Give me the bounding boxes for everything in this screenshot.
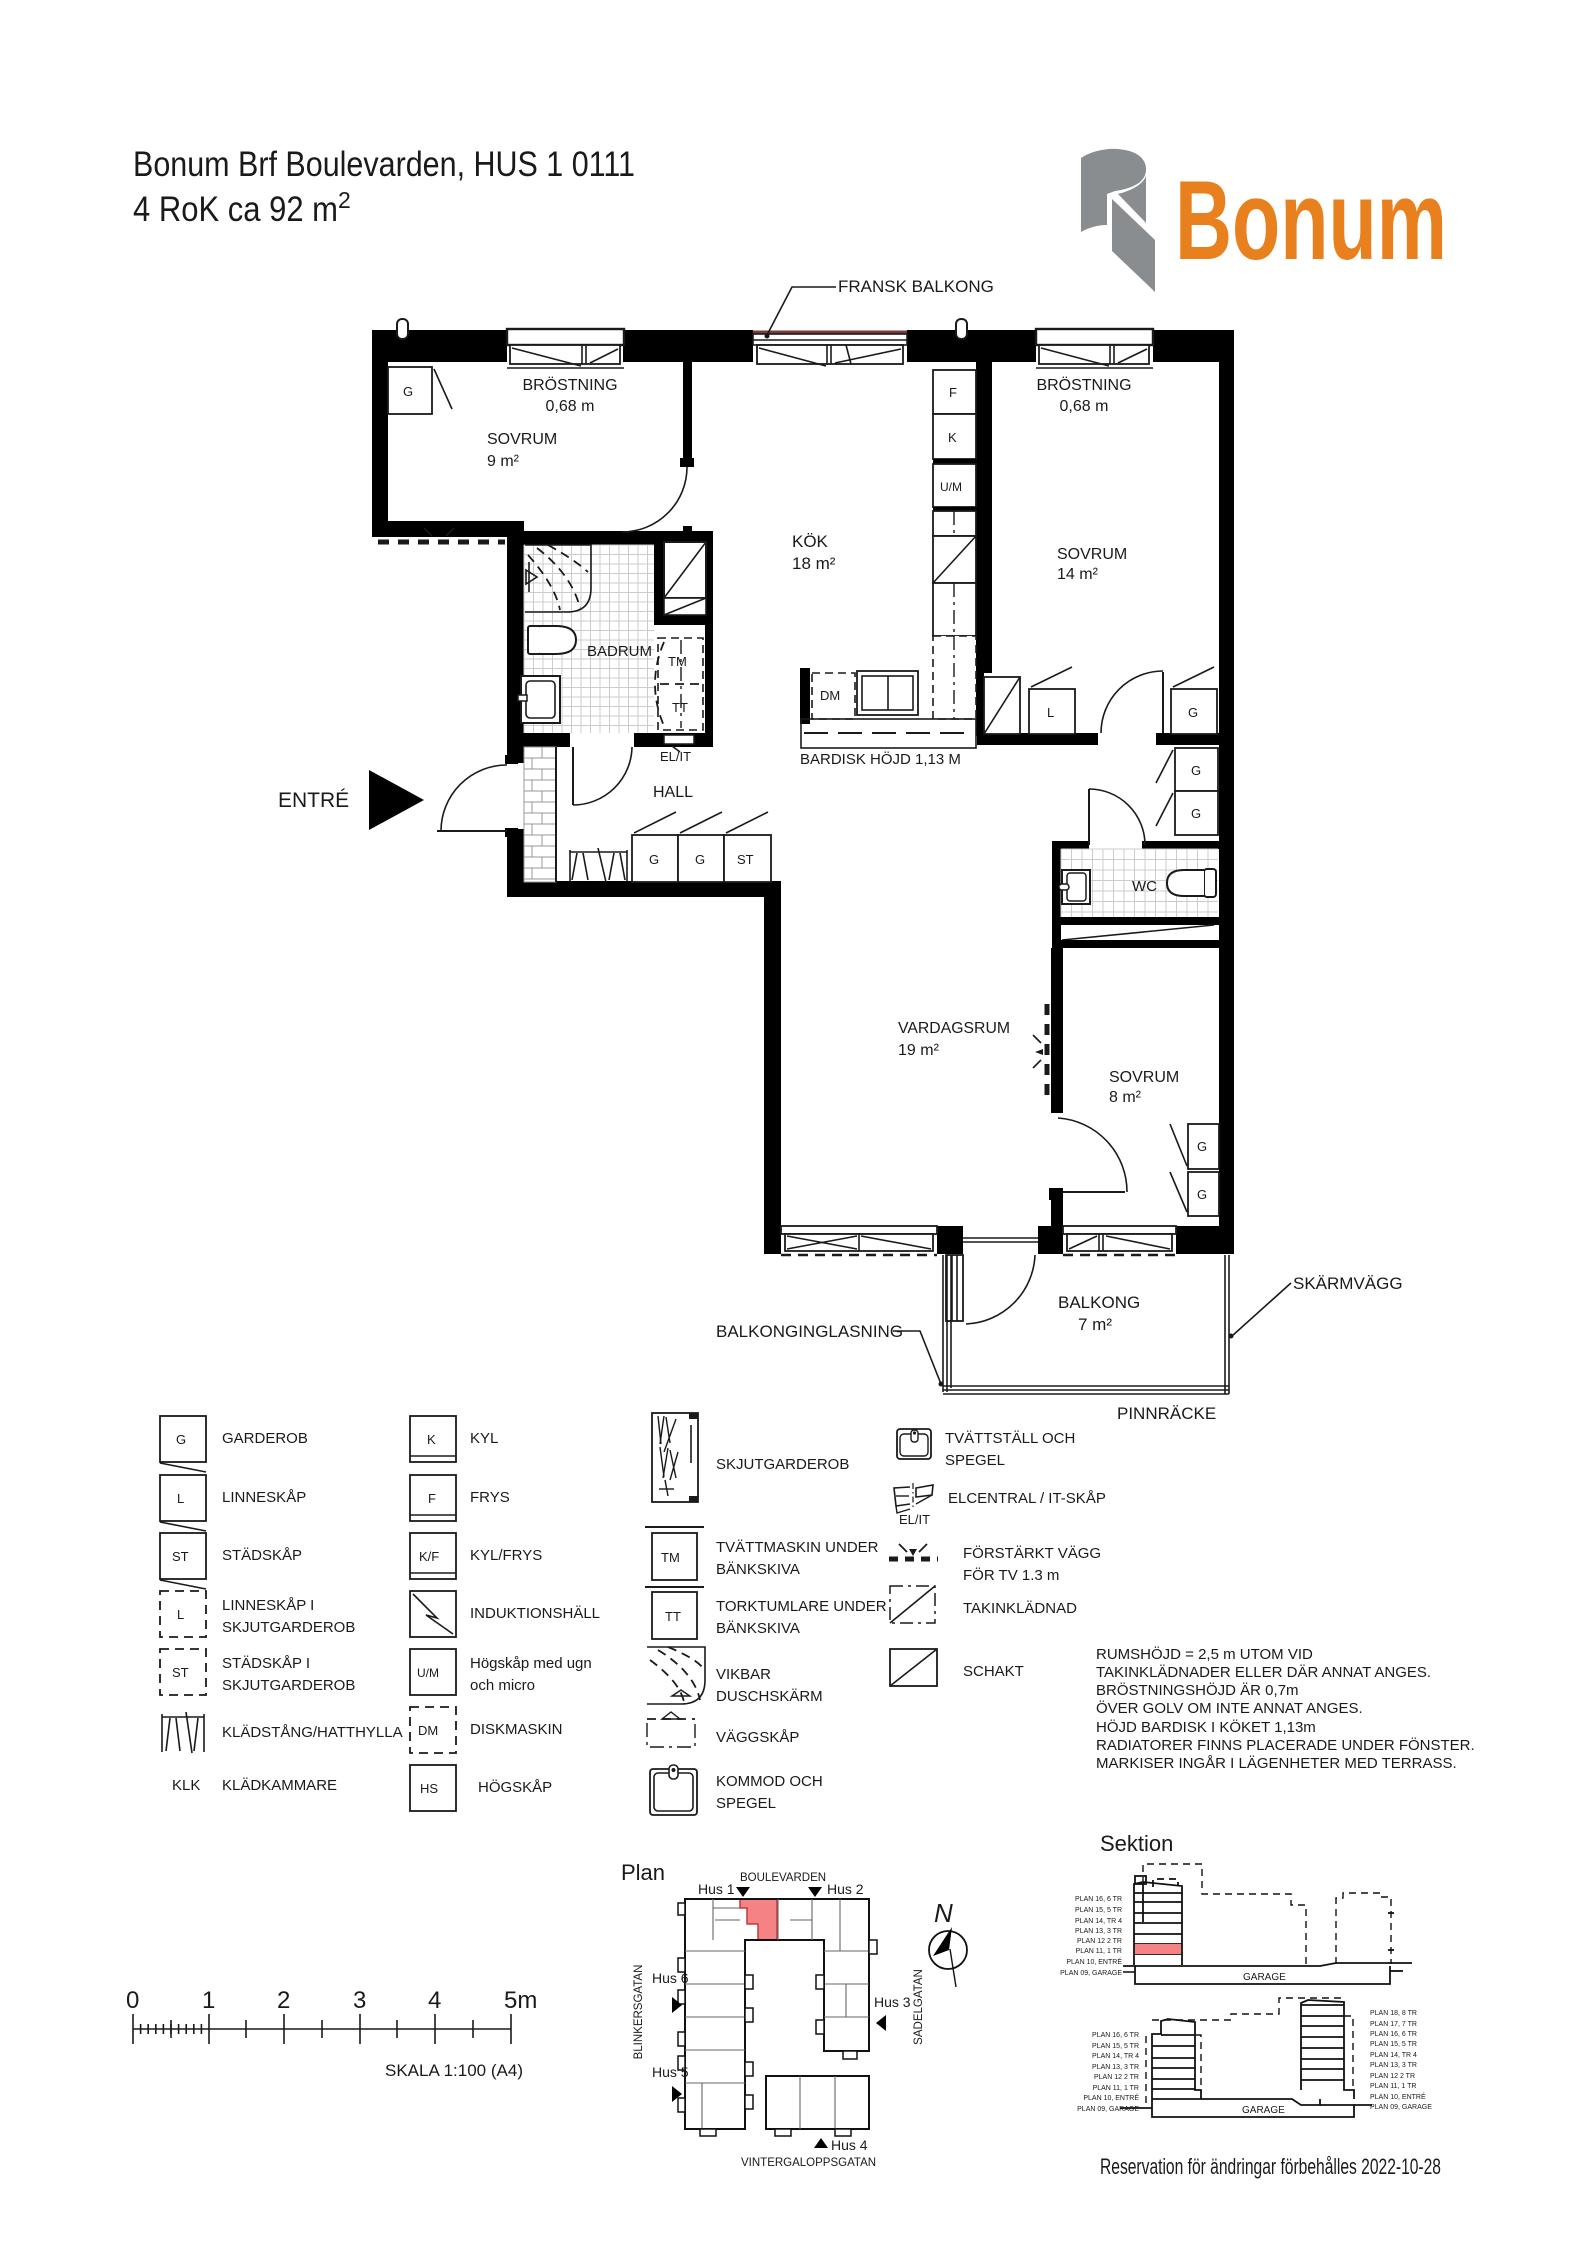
svg-text:ST: ST (737, 852, 754, 867)
svg-text:DUSCHSKÄRM: DUSCHSKÄRM (716, 1688, 823, 1705)
svg-text:14 m²: 14 m² (1057, 566, 1099, 583)
svg-text:PLAN 16, 6 TR: PLAN 16, 6 TR (1370, 2031, 1417, 2038)
svg-text:Högskåp med ugn: Högskåp med ugn (470, 1655, 592, 1672)
svg-text:RUMSHÖJD = 2,5 m UTOM VID: RUMSHÖJD = 2,5 m UTOM VID (1096, 1645, 1313, 1663)
svg-text:PLAN 09, GARAGE: PLAN 09, GARAGE (1370, 2104, 1432, 2111)
svg-text:SOVRUM: SOVRUM (487, 431, 557, 448)
svg-text:FRANSK BALKONG: FRANSK BALKONG (838, 277, 994, 296)
svg-text:BADRUM: BADRUM (587, 643, 652, 660)
svg-text:G: G (695, 852, 705, 867)
svg-text:SPEGEL: SPEGEL (716, 1795, 776, 1812)
svg-text:GARAGE: GARAGE (1243, 1972, 1286, 1983)
svg-text:9 m²: 9 m² (487, 453, 520, 470)
svg-text:K/F: K/F (419, 1549, 439, 1564)
svg-text:BARDISK HÖJD 1,13 M: BARDISK HÖJD 1,13 M (800, 750, 961, 768)
svg-text:Bonum Brf Boulevarden, HUS 1: Bonum Brf Boulevarden, HUS 1 0111 (133, 145, 635, 184)
svg-text:0,68 m: 0,68 m (546, 398, 595, 415)
svg-text:GARAGE: GARAGE (1242, 2105, 1285, 2116)
svg-text:GARDEROB: GARDEROB (222, 1430, 308, 1447)
svg-text:PLAN 12 2 TR: PLAN 12 2 TR (1094, 2074, 1139, 2081)
svg-text:KYL: KYL (470, 1430, 498, 1447)
svg-text:HÖJD BARDISK I KÖKET 1,13m: HÖJD BARDISK I KÖKET 1,13m (1096, 1718, 1316, 1736)
svg-text:FÖRSTÄRKT VÄGG: FÖRSTÄRKT VÄGG (963, 1544, 1101, 1562)
svg-text:BRÖSTNING: BRÖSTNING (522, 376, 617, 394)
svg-text:ST: ST (172, 1665, 189, 1680)
svg-text:ÖVER GOLV OM INTE ANNAT ANGES.: ÖVER GOLV OM INTE ANNAT ANGES. (1096, 1699, 1363, 1717)
svg-text:BALKONGINGLASNING: BALKONGINGLASNING (716, 1322, 903, 1341)
svg-text:PLAN 10, ENTRÉ: PLAN 10, ENTRÉ (1066, 1957, 1122, 1966)
svg-text:SCHAKT: SCHAKT (963, 1663, 1024, 1680)
svg-text:PLAN 11, 1 TR: PLAN 11, 1 TR (1076, 1948, 1122, 1955)
svg-text:Reservation för ändringar förb: Reservation för ändringar förbehålles 20… (1100, 2154, 1441, 2179)
svg-text:F: F (949, 385, 957, 400)
svg-text:PLAN 09, GARAGE: PLAN 09, GARAGE (1060, 1970, 1122, 1977)
svg-text:PLAN 17, 7 TR: PLAN 17, 7 TR (1370, 2021, 1417, 2028)
svg-text:PLAN 10, ENTRÉ: PLAN 10, ENTRÉ (1083, 2093, 1139, 2102)
svg-text:2: 2 (277, 1987, 290, 2014)
svg-text:PLAN 13, 3 TR: PLAN 13, 3 TR (1092, 2064, 1139, 2071)
svg-text:PLAN 16, 6 TR: PLAN 16, 6 TR (1075, 1896, 1122, 1903)
svg-text:FRYS: FRYS (470, 1489, 510, 1506)
svg-text:G: G (1191, 763, 1201, 778)
svg-text:WC: WC (1132, 878, 1157, 895)
svg-text:TT: TT (672, 700, 688, 715)
svg-text:HÖGSKÅP: HÖGSKÅP (478, 1778, 552, 1796)
svg-text:Hus 6: Hus 6 (652, 1970, 689, 1986)
svg-text:7 m²: 7 m² (1078, 1315, 1112, 1334)
svg-text:Hus 1: Hus 1 (698, 1881, 735, 1897)
svg-text:EL/IT: EL/IT (660, 749, 691, 764)
svg-text:VARDAGSRUM: VARDAGSRUM (898, 1020, 1010, 1037)
svg-text:Hus 4: Hus 4 (831, 2137, 868, 2153)
svg-text:G: G (1191, 806, 1201, 821)
svg-text:PLAN 16, 6 TR: PLAN 16, 6 TR (1092, 2032, 1139, 2039)
svg-text:3: 3 (353, 1987, 366, 2014)
svg-text:KÖK: KÖK (792, 532, 829, 551)
svg-text:K: K (948, 430, 957, 445)
svg-text:BRÖSTNING: BRÖSTNING (1036, 376, 1131, 394)
svg-text:ST: ST (172, 1549, 189, 1564)
svg-text:RADIATORER FINNS PLACERADE UND: RADIATORER FINNS PLACERADE UNDER FÖNSTER… (1096, 1736, 1475, 1754)
svg-text:8 m²: 8 m² (1109, 1089, 1142, 1106)
svg-text:FÖR TV 1.3 m: FÖR TV 1.3 m (963, 1566, 1059, 1584)
svg-text:TAKINKLÄDNAD: TAKINKLÄDNAD (963, 1600, 1077, 1617)
svg-text:1: 1 (202, 1987, 215, 2014)
svg-text:G: G (649, 852, 659, 867)
svg-text:0: 0 (126, 1987, 139, 2014)
svg-text:SOVRUM: SOVRUM (1109, 1069, 1179, 1086)
svg-text:SKALA 1:100 (A4): SKALA 1:100 (A4) (385, 2061, 523, 2080)
svg-text:STÄDSKÅP I: STÄDSKÅP I (222, 1655, 310, 1672)
svg-text:VINTERGALOPPSGATAN: VINTERGALOPPSGATAN (741, 2157, 876, 2169)
svg-text:LINNESKÅP: LINNESKÅP (222, 1489, 306, 1506)
svg-text:INDUKTIONSHÄLL: INDUKTIONSHÄLL (470, 1605, 600, 1622)
svg-text:KOMMOD OCH: KOMMOD OCH (716, 1773, 823, 1790)
svg-text:ELCENTRAL / IT-SKÅP: ELCENTRAL / IT-SKÅP (948, 1490, 1106, 1507)
svg-text:BLINKERSGATAN: BLINKERSGATAN (633, 1965, 645, 2060)
svg-text:BRÖSTNINGSHÖJD ÄR 0,7m: BRÖSTNINGSHÖJD ÄR 0,7m (1096, 1681, 1299, 1699)
svg-text:SOVRUM: SOVRUM (1057, 546, 1127, 563)
svg-text:TT: TT (665, 1609, 681, 1624)
svg-text:G: G (1197, 1187, 1207, 1202)
svg-text:och micro: och micro (470, 1677, 535, 1694)
svg-text:0,68 m: 0,68 m (1060, 398, 1109, 415)
svg-text:PLAN 14, TR 4: PLAN 14, TR 4 (1075, 1918, 1122, 1925)
svg-text:Sektion: Sektion (1100, 1831, 1173, 1856)
svg-text:PLAN 15, 5 TR: PLAN 15, 5 TR (1092, 2043, 1139, 2050)
svg-text:L: L (177, 1491, 184, 1506)
svg-text:PLAN 13, 3 TR: PLAN 13, 3 TR (1075, 1928, 1122, 1935)
svg-text:G: G (1197, 1139, 1207, 1154)
svg-text:BOULEVARDEN: BOULEVARDEN (740, 1872, 826, 1884)
svg-text:HALL: HALL (653, 784, 693, 801)
svg-text:STÄDSKÅP: STÄDSKÅP (222, 1547, 302, 1564)
svg-text:PLAN 15, 5 TR: PLAN 15, 5 TR (1370, 2041, 1417, 2048)
svg-text:SKJUTGARDEROB: SKJUTGARDEROB (222, 1677, 355, 1694)
svg-text:5m: 5m (504, 1987, 537, 2014)
svg-text:KLK: KLK (172, 1777, 200, 1794)
svg-text:SPEGEL: SPEGEL (945, 1452, 1005, 1469)
svg-text:KYL/FRYS: KYL/FRYS (470, 1547, 542, 1564)
svg-text:L: L (177, 1607, 184, 1622)
svg-text:TORKTUMLARE UNDER: TORKTUMLARE UNDER (716, 1598, 887, 1615)
svg-text:SKJUTGARDEROB: SKJUTGARDEROB (222, 1619, 355, 1636)
svg-text:SKJUTGARDEROB: SKJUTGARDEROB (716, 1456, 849, 1473)
svg-text:PLAN 14, TR 4: PLAN 14, TR 4 (1370, 2052, 1417, 2059)
svg-text:L: L (1047, 705, 1054, 720)
svg-text:PLAN 09, GARAGE: PLAN 09, GARAGE (1077, 2106, 1139, 2113)
svg-text:BÄNKSKIVA: BÄNKSKIVA (716, 1561, 800, 1578)
svg-text:4: 4 (428, 1987, 441, 2014)
svg-text:K: K (427, 1432, 436, 1447)
svg-text:DISKMASKIN: DISKMASKIN (470, 1721, 563, 1738)
svg-text:PLAN 13, 3 TR: PLAN 13, 3 TR (1370, 2062, 1417, 2069)
svg-text:Plan: Plan (621, 1860, 665, 1885)
svg-text:MARKISER INGÅR I LÄGENHETER ME: MARKISER INGÅR I LÄGENHETER MED TERRASS. (1096, 1755, 1457, 1772)
svg-text:PLAN 11, 1 TR: PLAN 11, 1 TR (1370, 2083, 1416, 2090)
svg-text:U/M: U/M (417, 1666, 439, 1680)
svg-text:BÄNKSKIVA: BÄNKSKIVA (716, 1620, 800, 1637)
svg-text:PLAN 15, 5 TR: PLAN 15, 5 TR (1075, 1907, 1122, 1914)
svg-text:F: F (428, 1491, 436, 1506)
svg-text:VÄGGSKÅP: VÄGGSKÅP (716, 1729, 799, 1746)
svg-text:BALKONG: BALKONG (1058, 1293, 1140, 1312)
svg-text:ENTRÉ: ENTRÉ (278, 789, 349, 812)
svg-text:PLAN 10, ENTRÉ: PLAN 10, ENTRÉ (1370, 2092, 1426, 2101)
svg-text:EL/IT: EL/IT (899, 1512, 930, 1527)
svg-text:VIKBAR: VIKBAR (716, 1666, 771, 1683)
svg-text:TVÄTTMASKIN UNDER: TVÄTTMASKIN UNDER (716, 1539, 879, 1556)
svg-text:KLÄDSTÅNG/HATTHYLLA: KLÄDSTÅNG/HATTHYLLA (222, 1724, 403, 1741)
svg-text:PLAN 14, TR 4: PLAN 14, TR 4 (1092, 2053, 1139, 2060)
svg-text:PLAN 11, 1 TR: PLAN 11, 1 TR (1093, 2085, 1139, 2092)
svg-text:TAKINKLÄDNADER ELLER DÄR ANNAT: TAKINKLÄDNADER ELLER DÄR ANNAT ANGES. (1096, 1664, 1431, 1681)
svg-text:KLÄDKAMMARE: KLÄDKAMMARE (222, 1777, 337, 1794)
svg-text:Hus 3: Hus 3 (874, 1994, 911, 2010)
svg-text:PLAN 12 2 TR: PLAN 12 2 TR (1077, 1938, 1122, 1945)
svg-text:HS: HS (420, 1781, 438, 1796)
svg-text:SADELGATAN: SADELGATAN (913, 1969, 925, 2045)
svg-text:18 m²: 18 m² (792, 554, 836, 573)
svg-text:U/M: U/M (940, 480, 962, 494)
svg-text:G: G (403, 384, 413, 399)
svg-text:SKÄRMVÄGG: SKÄRMVÄGG (1293, 1274, 1403, 1293)
svg-text:19 m²: 19 m² (898, 1042, 940, 1059)
svg-text:G: G (1188, 705, 1198, 720)
svg-text:PLAN 18, 8 TR: PLAN 18, 8 TR (1370, 2010, 1417, 2017)
svg-text:DM: DM (418, 1723, 438, 1738)
svg-text:Hus 5: Hus 5 (652, 2064, 689, 2080)
svg-text:DM: DM (820, 688, 840, 703)
svg-text:4 RoK ca 92 m2: 4 RoK ca 92 m2 (133, 187, 351, 229)
svg-text:Bonum: Bonum (1175, 158, 1447, 283)
svg-text:TVÄTTSTÄLL OCH: TVÄTTSTÄLL OCH (945, 1430, 1075, 1447)
svg-text:N: N (934, 1898, 953, 1928)
svg-text:PLAN 12 2 TR: PLAN 12 2 TR (1370, 2073, 1415, 2080)
svg-text:TM: TM (661, 1550, 680, 1565)
svg-text:PINNRÄCKE: PINNRÄCKE (1117, 1404, 1216, 1423)
svg-text:TM: TM (668, 654, 687, 669)
svg-text:LINNESKÅP I: LINNESKÅP I (222, 1597, 314, 1614)
svg-text:Hus 2: Hus 2 (827, 1881, 864, 1897)
svg-text:G: G (176, 1432, 186, 1447)
